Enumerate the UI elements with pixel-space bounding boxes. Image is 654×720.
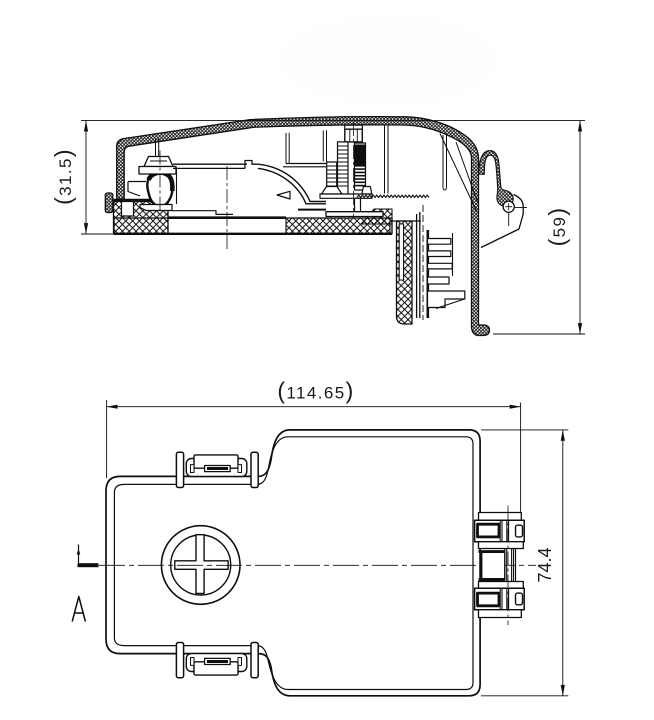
svg-text:74.4: 74.4 [535, 547, 555, 582]
